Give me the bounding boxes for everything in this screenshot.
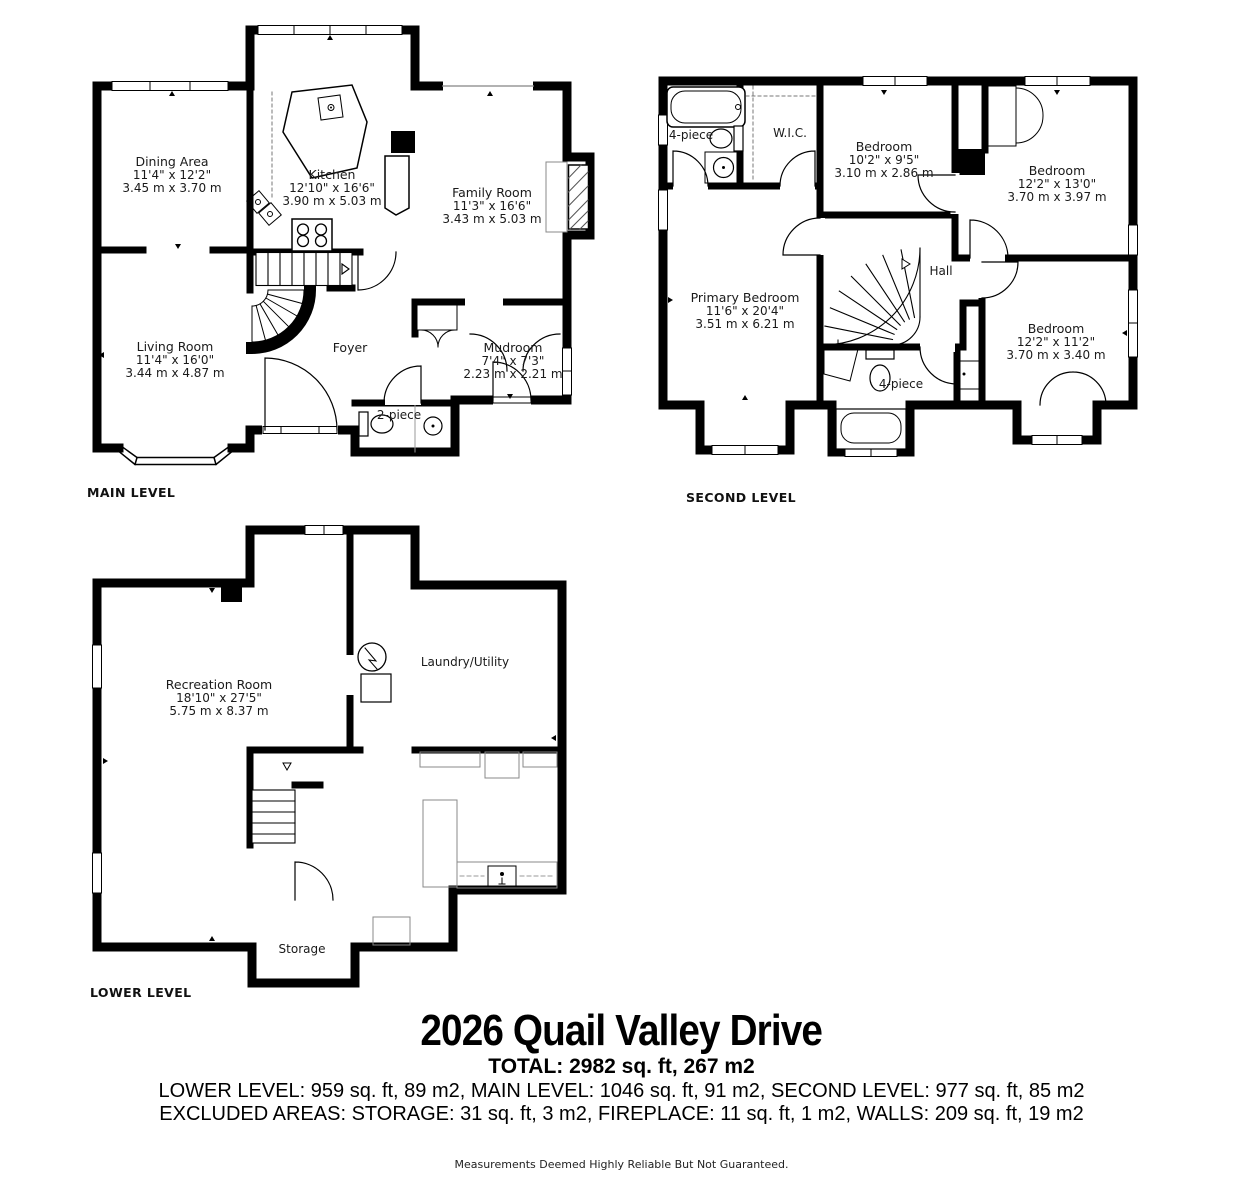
room-label-storage: Storage [279, 943, 326, 957]
room-label-bedroom-1: Bedroom 10'2" x 9'5" 3.10 m x 2.86 m [834, 140, 933, 181]
room-label-4-piece-upper: 4-piece [669, 129, 713, 143]
room-label-bedroom-2: Bedroom 12'2" x 13'0" 3.70 m x 3.97 m [1007, 164, 1106, 205]
room-label-wic: W.I.C. [773, 127, 807, 141]
main-level-plan [97, 26, 590, 465]
lower-level-plan [93, 526, 563, 984]
room-label-hall: Hall [929, 265, 952, 279]
floorplan-sheet: Dining Area 11'4" x 12'2" 3.45 m x 3.70 … [0, 0, 1243, 1200]
door-arc [295, 862, 333, 900]
lower-level-caption: LOWER LEVEL [90, 985, 192, 1000]
second-level-caption: SECOND LEVEL [686, 490, 796, 505]
furnace-icon [358, 643, 386, 671]
sink-icon [705, 152, 742, 183]
fridge-icon [385, 131, 415, 215]
room-label-2-piece: 2-piece [377, 409, 421, 423]
bathtub-icon [667, 87, 745, 127]
room-label-primary-bedroom: Primary Bedroom 11'6" x 20'4" 3.51 m x 6… [691, 291, 800, 332]
excluded-areas: EXCLUDED AREAS: STORAGE: 31 sq. ft, 3 m2… [0, 1103, 1243, 1126]
stairs [252, 763, 295, 843]
bay-window [119, 445, 232, 465]
second-level-plan [659, 77, 1138, 457]
door-arc [358, 252, 396, 290]
room-label-family-room: Family Room 11'3" x 16'6" 3.43 m x 5.03 … [442, 186, 541, 227]
room-label-laundry-utility: Laundry/Utility [421, 656, 509, 670]
bathroom-fixtures [824, 340, 906, 449]
room-label-4-piece-lower: 4-piece [879, 378, 923, 392]
kitchen-island [283, 85, 367, 178]
toilet-icon [710, 126, 743, 151]
toilet-icon [866, 350, 894, 359]
bathtub-icon [841, 413, 901, 443]
stove-icon [292, 219, 332, 251]
room-label-foyer: Foyer [333, 341, 368, 355]
room-label-bedroom-3: Bedroom 12'2" x 11'2" 3.70 m x 3.40 m [1006, 322, 1105, 363]
stairs [256, 253, 352, 286]
disclaimer: Measurements Deemed Highly Reliable But … [0, 1158, 1243, 1171]
room-label-living-room: Living Room 11'4" x 16'0" 3.44 m x 4.87 … [125, 340, 224, 381]
laundry-sink-icon [460, 866, 555, 887]
mudroom-closet [417, 305, 457, 347]
level-areas: LOWER LEVEL: 959 sq. ft, 89 m2, MAIN LEV… [0, 1080, 1243, 1103]
room-label-recreation-room: Recreation Room 18'10" x 27'5" 5.75 m x … [166, 678, 272, 719]
room-label-kitchen: Kitchen 12'10" x 16'6" 3.90 m x 5.03 m [282, 168, 381, 209]
fireplace-icon [546, 162, 589, 232]
room-label-dining-area: Dining Area 11'4" x 12'2" 3.45 m x 3.70 … [122, 155, 221, 196]
cabinet [373, 917, 410, 945]
curved-stairs [823, 248, 920, 345]
water-heater-icon [361, 674, 391, 702]
total-area: TOTAL: 2982 sq. ft, 267 m2 [0, 1055, 1243, 1079]
toilet-icon [359, 412, 368, 436]
main-level-caption: MAIN LEVEL [87, 485, 175, 500]
front-door [262, 358, 338, 436]
room-label-mudroom: Mudroom 7'4" x 7'3" 2.23 m x 2.21 m [463, 341, 562, 382]
page-title: 2026 Quail Valley Drive [0, 1006, 1243, 1056]
